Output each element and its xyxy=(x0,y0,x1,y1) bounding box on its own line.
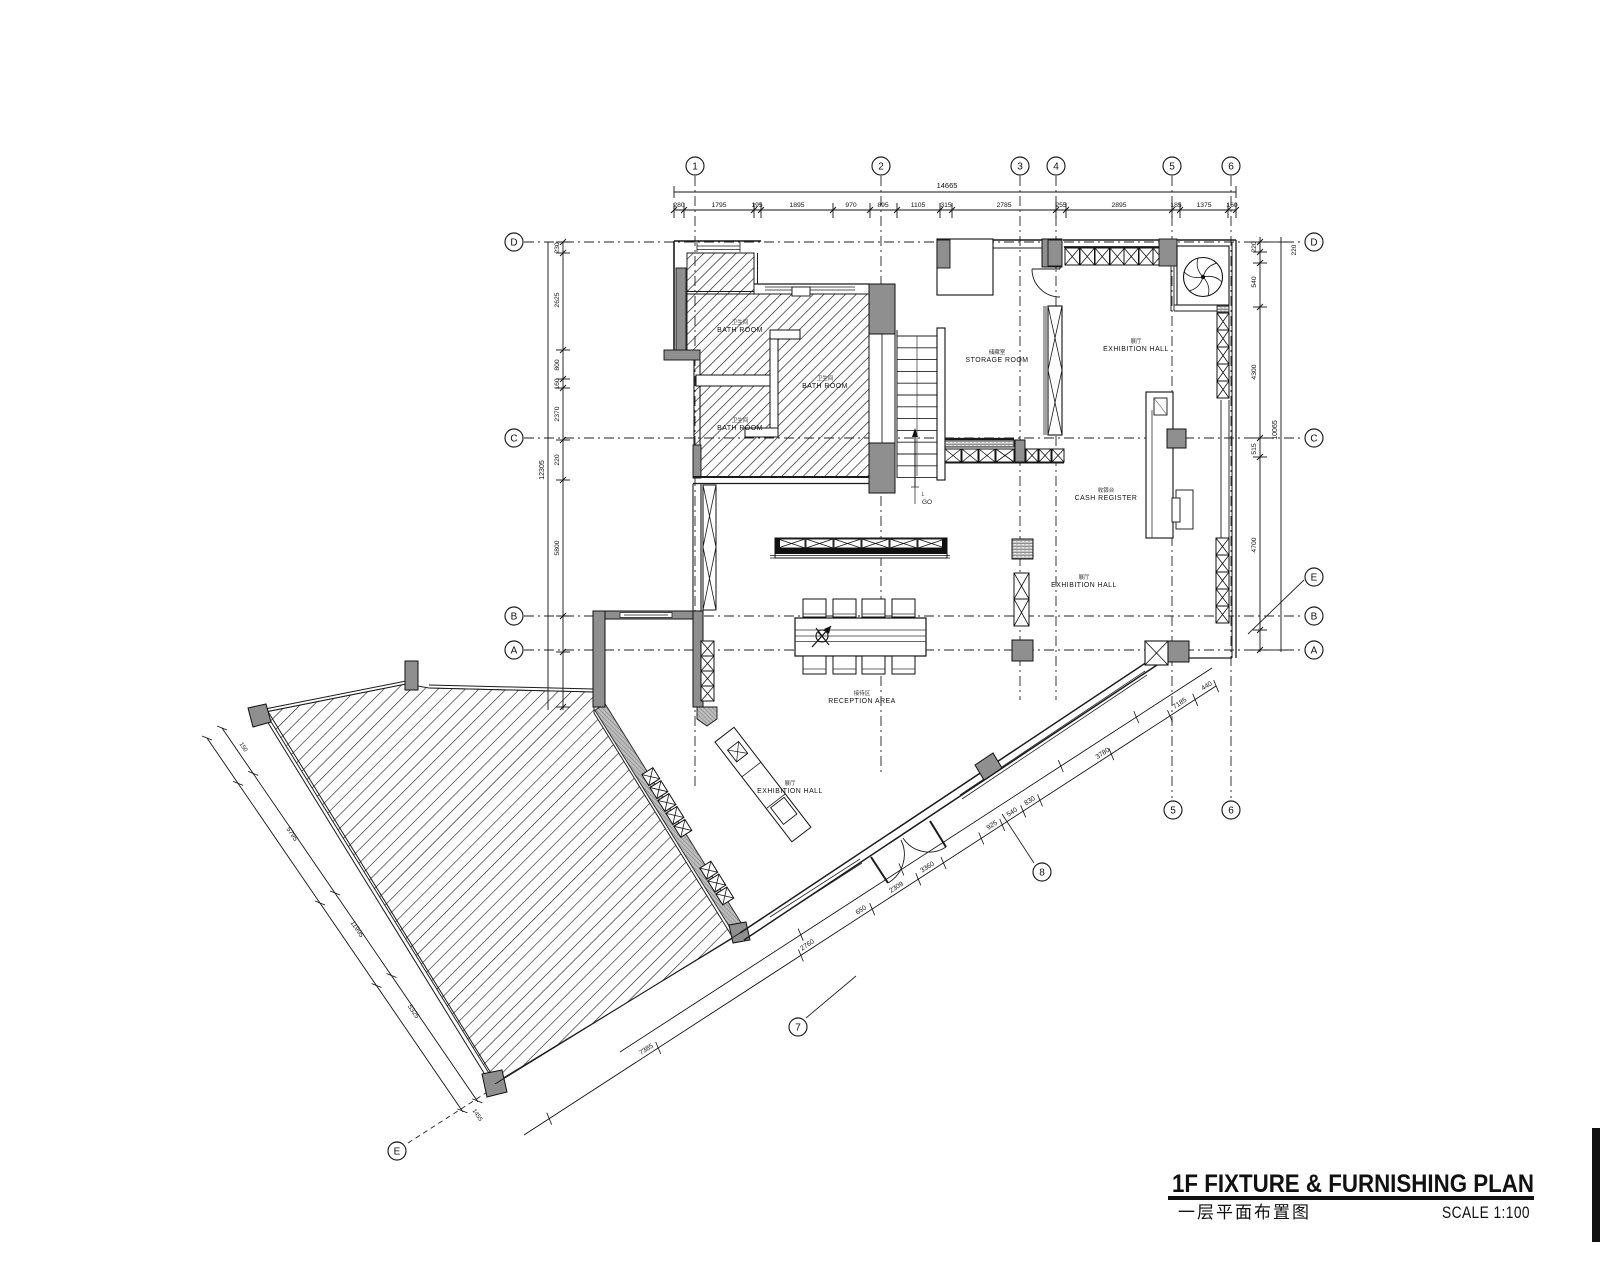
svg-text:6: 6 xyxy=(1228,806,1234,817)
svg-text:收银台: 收银台 xyxy=(1098,486,1115,494)
svg-text:1375: 1375 xyxy=(1196,202,1211,209)
svg-text:RECEPTION AREA: RECEPTION AREA xyxy=(828,698,896,705)
svg-text:EXHIBITION HALL: EXHIBITION HALL xyxy=(757,788,823,795)
svg-text:STORAGE ROOM: STORAGE ROOM xyxy=(966,357,1029,364)
svg-text:2895: 2895 xyxy=(1111,202,1126,209)
svg-text:6: 6 xyxy=(1228,162,1234,173)
svg-text:8: 8 xyxy=(1039,868,1045,879)
svg-text:EXHIBITION HALL: EXHIBITION HALL xyxy=(1051,582,1117,589)
svg-text:895: 895 xyxy=(877,202,889,209)
svg-text:2785: 2785 xyxy=(996,202,1011,209)
svg-text:5800: 5800 xyxy=(554,540,561,555)
svg-text:220: 220 xyxy=(1291,244,1298,255)
svg-text:EXHIBITION HALL: EXHIBITION HALL xyxy=(1103,346,1169,353)
svg-text:185: 185 xyxy=(1170,202,1182,209)
svg-text:3: 3 xyxy=(1017,162,1023,173)
svg-text:C: C xyxy=(510,434,517,445)
svg-text:195: 195 xyxy=(751,202,763,209)
svg-text:1895: 1895 xyxy=(789,202,804,209)
svg-text:220: 220 xyxy=(1251,241,1258,253)
svg-text:2625: 2625 xyxy=(554,292,561,307)
svg-text:B: B xyxy=(511,612,518,623)
svg-text:230: 230 xyxy=(554,242,561,254)
svg-text:BATH ROOM: BATH ROOM xyxy=(802,383,848,390)
svg-text:卫生间: 卫生间 xyxy=(732,318,749,326)
svg-text:1F FIXTURE & FURNISHING PLAN: 1F FIXTURE & FURNISHING PLAN xyxy=(1172,1170,1534,1198)
svg-text:A: A xyxy=(511,646,518,657)
svg-text:SCALE 1:100: SCALE 1:100 xyxy=(1442,1204,1530,1222)
svg-text:220: 220 xyxy=(554,454,561,466)
svg-text:L: L xyxy=(922,492,925,498)
svg-text:卫生间: 卫生间 xyxy=(732,416,749,424)
svg-text:D: D xyxy=(510,238,517,249)
svg-text:2: 2 xyxy=(878,162,884,173)
svg-text:C: C xyxy=(1310,434,1317,445)
svg-text:1105: 1105 xyxy=(911,202,926,209)
svg-text:BATH ROOM: BATH ROOM xyxy=(717,327,763,334)
svg-text:B: B xyxy=(1311,612,1318,623)
svg-text:卫生间: 卫生间 xyxy=(817,374,834,382)
svg-text:255: 255 xyxy=(1055,202,1067,209)
svg-text:E: E xyxy=(394,1147,401,1158)
svg-text:12305: 12305 xyxy=(539,460,546,480)
svg-text:515: 515 xyxy=(1251,443,1258,455)
svg-text:展厅: 展厅 xyxy=(784,780,796,787)
svg-text:GO: GO xyxy=(922,499,932,506)
svg-text:接待区: 接待区 xyxy=(854,689,871,697)
svg-text:A: A xyxy=(1311,646,1318,657)
svg-text:一层平面布置图: 一层平面布置图 xyxy=(1178,1203,1311,1222)
svg-text:315: 315 xyxy=(940,202,952,209)
svg-text:1: 1 xyxy=(692,162,698,173)
svg-text:4300: 4300 xyxy=(1251,364,1258,379)
svg-text:展厅: 展厅 xyxy=(1078,574,1090,581)
svg-text:7: 7 xyxy=(795,1023,801,1034)
svg-text:160: 160 xyxy=(554,378,561,390)
svg-text:4700: 4700 xyxy=(1251,537,1258,552)
svg-text:储藏室: 储藏室 xyxy=(989,348,1006,356)
svg-text:BATH ROOM: BATH ROOM xyxy=(717,425,763,432)
svg-text:CASH REGISTER: CASH REGISTER xyxy=(1075,495,1138,502)
svg-text:800: 800 xyxy=(554,359,561,371)
svg-text:280: 280 xyxy=(673,202,685,209)
svg-text:970: 970 xyxy=(845,202,857,209)
svg-text:D: D xyxy=(1310,238,1317,249)
svg-text:160: 160 xyxy=(1226,202,1238,209)
svg-text:10065: 10065 xyxy=(1272,420,1279,440)
svg-text:4: 4 xyxy=(1053,162,1059,173)
svg-text:5: 5 xyxy=(1169,162,1175,173)
svg-text:540: 540 xyxy=(1251,276,1258,288)
svg-text:14665: 14665 xyxy=(937,181,958,190)
svg-text:1795: 1795 xyxy=(711,202,726,209)
svg-text:E: E xyxy=(1311,573,1318,584)
svg-text:2370: 2370 xyxy=(554,406,561,421)
svg-text:展厅: 展厅 xyxy=(1130,338,1142,345)
svg-text:5: 5 xyxy=(1170,806,1176,817)
